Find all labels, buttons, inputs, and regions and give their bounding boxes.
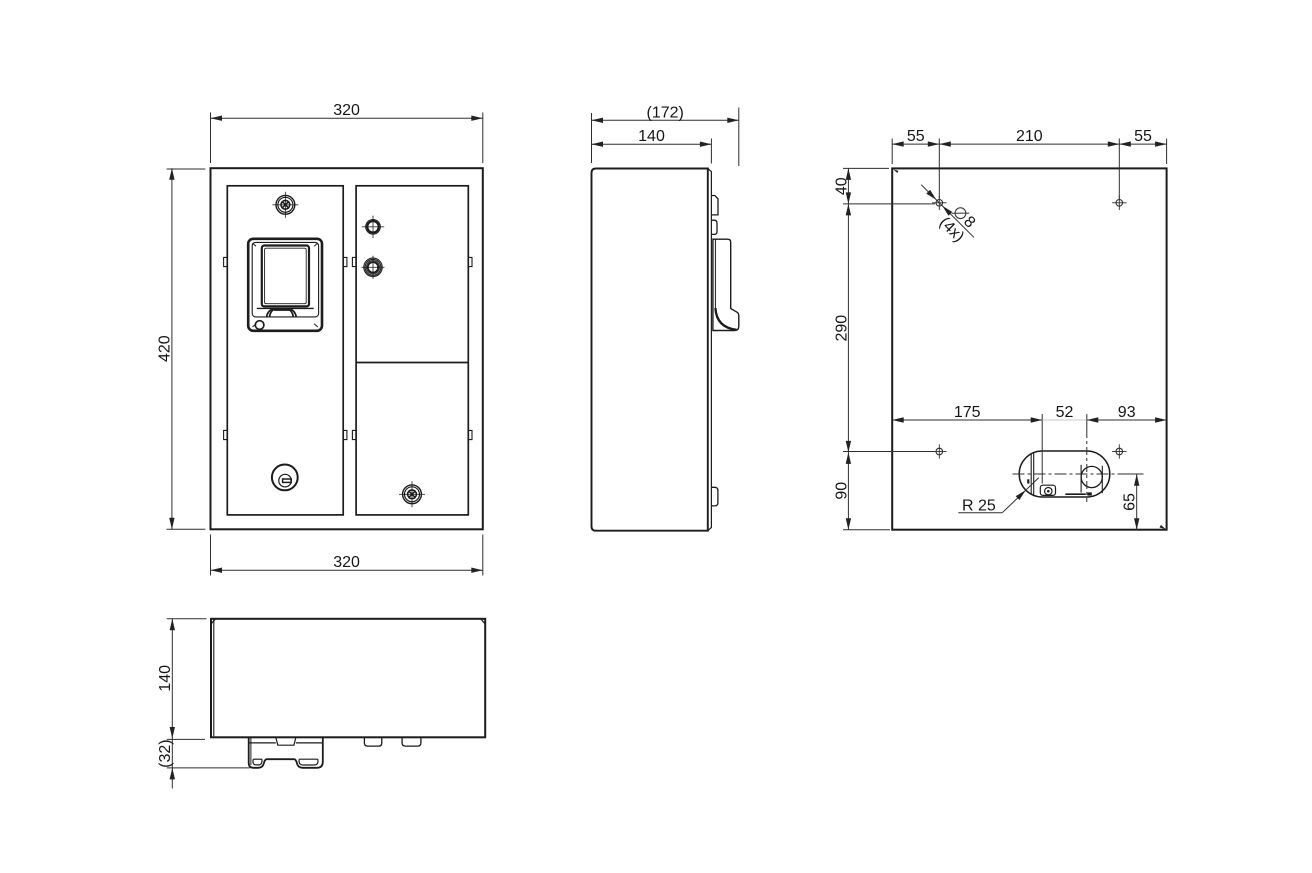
svg-text:140: 140 <box>157 665 174 692</box>
svg-text:90: 90 <box>834 482 851 500</box>
svg-text:140: 140 <box>638 128 665 145</box>
svg-text:320: 320 <box>333 102 360 119</box>
svg-text:290: 290 <box>834 315 851 342</box>
svg-text:175: 175 <box>954 404 981 421</box>
svg-text:40: 40 <box>834 177 851 195</box>
svg-text:420: 420 <box>157 335 174 362</box>
svg-text:55: 55 <box>1134 128 1152 145</box>
svg-text:55: 55 <box>907 128 925 145</box>
svg-text:R 25: R 25 <box>962 498 996 515</box>
svg-text:65: 65 <box>1121 493 1138 511</box>
svg-text:210: 210 <box>1016 128 1043 145</box>
svg-text:93: 93 <box>1118 404 1136 421</box>
svg-text:(32): (32) <box>157 739 174 767</box>
svg-text:320: 320 <box>333 554 360 571</box>
svg-text:52: 52 <box>1056 404 1074 421</box>
svg-text:(172): (172) <box>647 104 684 121</box>
